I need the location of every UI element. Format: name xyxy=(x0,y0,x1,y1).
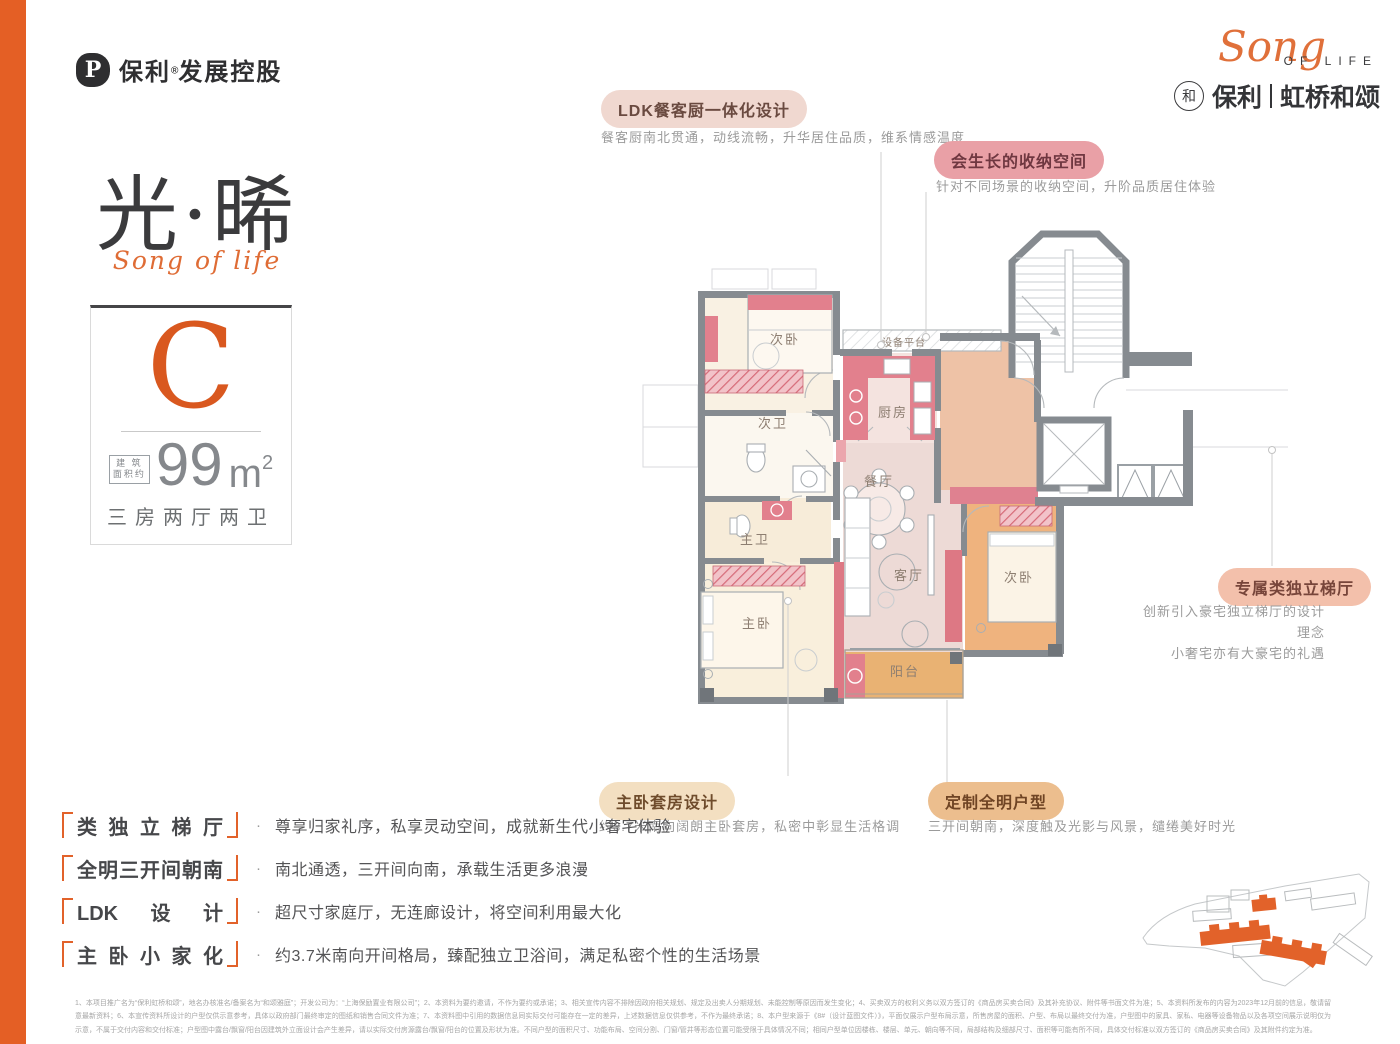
brand-divider xyxy=(1270,84,1272,108)
area-prefix: 建 筑面积约 xyxy=(109,455,150,484)
feature-desc: 约3.7米南向开间格局，臻配独立卫浴间，满足私密个性的生活场景 xyxy=(275,942,761,966)
feature-row-south: 全明三开间朝南 · 南北通透，三开间向南，承载生活更多浪漫 xyxy=(62,853,589,883)
label-kitchen: 厨房 xyxy=(878,405,908,420)
feature-row-lobby: 类独立梯厅 · 尊享归家礼序，私享灵动空间，成就新生代小奢宅体验 xyxy=(62,810,671,840)
dot-separator: · xyxy=(256,860,261,877)
unit-summary-card: C 建 筑面积约 99 m2 三房两厅两卫 xyxy=(90,305,292,545)
callout-storage-desc: 针对不同场景的收纳空间，升阶品质居住体验 xyxy=(936,176,1216,195)
brand-cn-left: 保利 xyxy=(1212,78,1262,114)
feature-title: 全明三开间朝南 xyxy=(77,854,223,883)
brand-circle-icon: 和 xyxy=(1174,81,1204,111)
label-bedroom-third: 次卧 xyxy=(1004,570,1034,585)
label-living: 客厅 xyxy=(894,568,924,583)
bracket-left-icon xyxy=(62,941,73,967)
bracket-left-icon xyxy=(62,812,73,838)
label-bedroom-master: 主卧 xyxy=(742,616,772,631)
bracket-right-icon xyxy=(227,812,238,838)
feature-row-master: 主卧小家化 · 约3.7米南向开间格局，臻配独立卫浴间，满足私密个性的生活场景 xyxy=(62,939,761,969)
dot-separator: · xyxy=(256,903,261,920)
bracket-right-icon xyxy=(227,855,238,881)
developer-name: 保利 xyxy=(119,59,171,86)
feature-title: 主卧小家化 xyxy=(77,940,223,969)
plan-letter: C xyxy=(91,308,291,429)
poly-p-logo-icon: P xyxy=(76,53,110,87)
callout-storage: 会生长的收纳空间 xyxy=(934,141,1104,179)
label-bedroom-top: 次卧 xyxy=(770,332,800,347)
site-plan xyxy=(1135,860,1375,1000)
label-equipment: 设备平台 xyxy=(882,336,926,349)
callout-lobby-desc: 创新引入豪宅独立梯厅的设计理念小奢宅亦有大豪宅的礼遇 xyxy=(1135,602,1325,664)
area-unit: m2 xyxy=(229,454,273,492)
callout-ldk: LDK餐客厨一体化设计 xyxy=(601,90,807,128)
feature-row-ldk: LDK设计 · 超尺寸家庭厅，无连廊设计，将空间利用最大化 xyxy=(62,896,622,926)
dot-separator: · xyxy=(256,946,261,963)
site-buildings-highlight xyxy=(1199,893,1328,968)
brand-block: Song OF LIFE 和 保利 虹桥和颂 xyxy=(1150,26,1380,114)
callout-bright-desc: 三开间朝南，深度触及光影与风景，缱绻美好时光 xyxy=(928,816,1236,835)
poster-page: P 保利®发展控股 Song OF LIFE 和 保利 虹桥和颂 光·晞 Son… xyxy=(0,0,1400,1044)
bracket-left-icon xyxy=(62,855,73,881)
floor-plan: 次卧 次卫 主卫 主卧 厨房 设备平台 餐厅 客厅 次卧 阳台 xyxy=(600,140,1400,820)
label-balcony: 阳台 xyxy=(890,664,920,679)
feature-title: LDK设计 xyxy=(77,897,223,926)
feature-desc: 南北通透，三开间向南，承载生活更多浪漫 xyxy=(275,856,589,880)
brand-cn-right: 虹桥和颂 xyxy=(1280,78,1380,114)
feature-desc: 超尺寸家庭厅，无连廊设计，将空间利用最大化 xyxy=(275,899,622,923)
area-number: 99 xyxy=(156,438,223,492)
bracket-right-icon xyxy=(227,898,238,924)
developer-logo: P 保利®发展控股 xyxy=(76,52,282,87)
callout-bright: 定制全明户型 xyxy=(928,782,1064,820)
area-power: 2 xyxy=(262,452,273,474)
developer-suffix: 发展控股 xyxy=(178,59,282,86)
hall-pink-band xyxy=(950,487,1038,504)
label-bath-second: 次卫 xyxy=(758,416,788,431)
dot-separator: · xyxy=(256,817,261,834)
rooms-summary: 三房两厅两卫 xyxy=(91,501,291,530)
unit-title-script: Song of life xyxy=(92,246,302,275)
elevator xyxy=(1040,420,1108,493)
callout-lobby: 专属类独立梯厅 xyxy=(1218,568,1371,606)
bracket-left-icon xyxy=(62,898,73,924)
left-orange-band xyxy=(0,0,26,1044)
legal-disclaimer: 1、本项目推广名为“保利虹桥和颂”，地名办核准名/备案名为“和颂雅庭”；开发公司… xyxy=(75,997,1331,1037)
feature-title: 类独立梯厅 xyxy=(77,811,223,840)
label-bath-master: 主卫 xyxy=(740,532,770,547)
bracket-right-icon xyxy=(227,941,238,967)
callout-ldk-desc: 餐客厨南北贯通，动线流畅，升华居住品质，维系情感温度 xyxy=(601,127,965,146)
feature-desc: 尊享归家礼序，私享灵动空间，成就新生代小奢宅体验 xyxy=(275,813,671,837)
label-dining: 餐厅 xyxy=(864,474,894,489)
